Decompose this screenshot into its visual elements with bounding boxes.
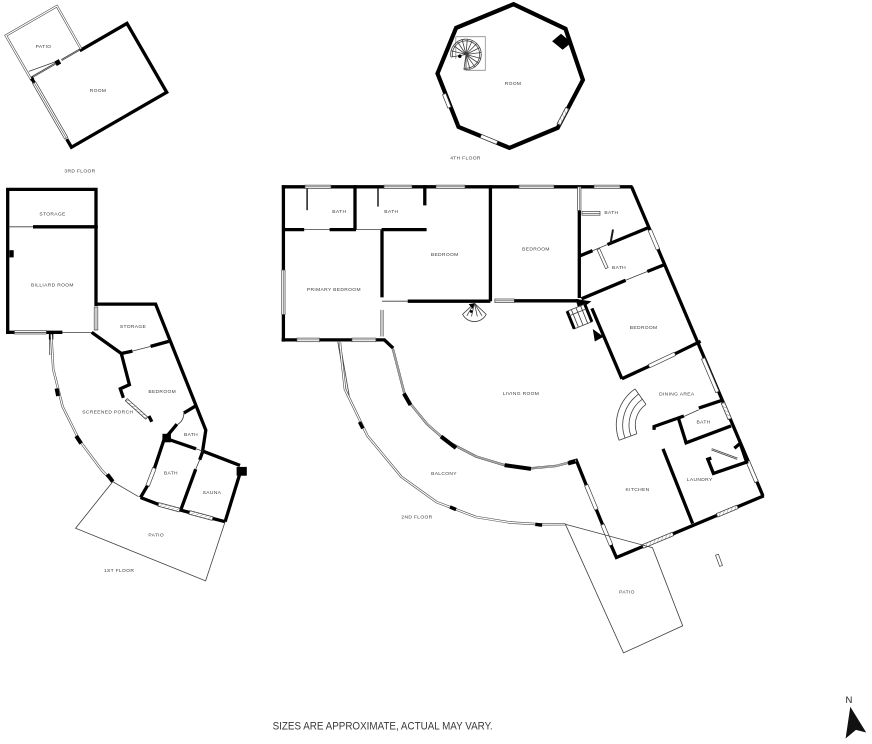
svg-text:BEDROOM: BEDROOM	[522, 246, 550, 252]
svg-text:BATH: BATH	[332, 209, 346, 215]
svg-text:LIVING ROOM: LIVING ROOM	[503, 391, 539, 397]
svg-text:STORAGE: STORAGE	[120, 324, 147, 330]
svg-text:4TH FLOOR: 4TH FLOOR	[450, 156, 481, 162]
svg-text:SIZES ARE APPROXIMATE, ACTUAL: SIZES ARE APPROXIMATE, ACTUAL MAY VARY.	[273, 720, 493, 732]
svg-text:BILLIARD ROOM: BILLIARD ROOM	[31, 282, 74, 288]
svg-text:STORAGE: STORAGE	[39, 212, 66, 218]
svg-text:N: N	[846, 695, 853, 706]
svg-text:KITCHEN: KITCHEN	[626, 487, 650, 493]
svg-text:SAUNA: SAUNA	[203, 490, 222, 496]
svg-text:BALCONY: BALCONY	[431, 471, 457, 477]
svg-text:PRIMARY BEDROOM: PRIMARY BEDROOM	[307, 287, 361, 293]
svg-text:SCREENED PORCH: SCREENED PORCH	[82, 409, 133, 415]
svg-text:BATH: BATH	[697, 420, 711, 426]
svg-text:3RD FLOOR: 3RD FLOOR	[64, 169, 95, 175]
svg-text:2ND FLOOR: 2ND FLOOR	[401, 514, 432, 520]
svg-text:BEDROOM: BEDROOM	[431, 252, 459, 258]
svg-text:LAUNDRY: LAUNDRY	[687, 477, 713, 483]
svg-text:DINING AREA: DINING AREA	[659, 391, 695, 397]
svg-text:1ST FLOOR: 1ST FLOOR	[104, 568, 134, 574]
svg-text:BATH: BATH	[184, 432, 198, 438]
svg-text:BATH: BATH	[612, 265, 626, 271]
svg-text:ROOM: ROOM	[505, 81, 522, 87]
svg-text:BATH: BATH	[164, 471, 178, 477]
svg-text:BATH: BATH	[384, 209, 398, 215]
svg-text:ROOM: ROOM	[90, 88, 107, 94]
svg-text:BATH: BATH	[604, 210, 618, 216]
svg-text:BEDROOM: BEDROOM	[630, 325, 658, 331]
svg-text:PATIO: PATIO	[148, 532, 164, 538]
svg-text:BEDROOM: BEDROOM	[148, 389, 176, 395]
svg-text:PATIO: PATIO	[619, 590, 635, 596]
svg-text:PATIO: PATIO	[36, 44, 52, 50]
